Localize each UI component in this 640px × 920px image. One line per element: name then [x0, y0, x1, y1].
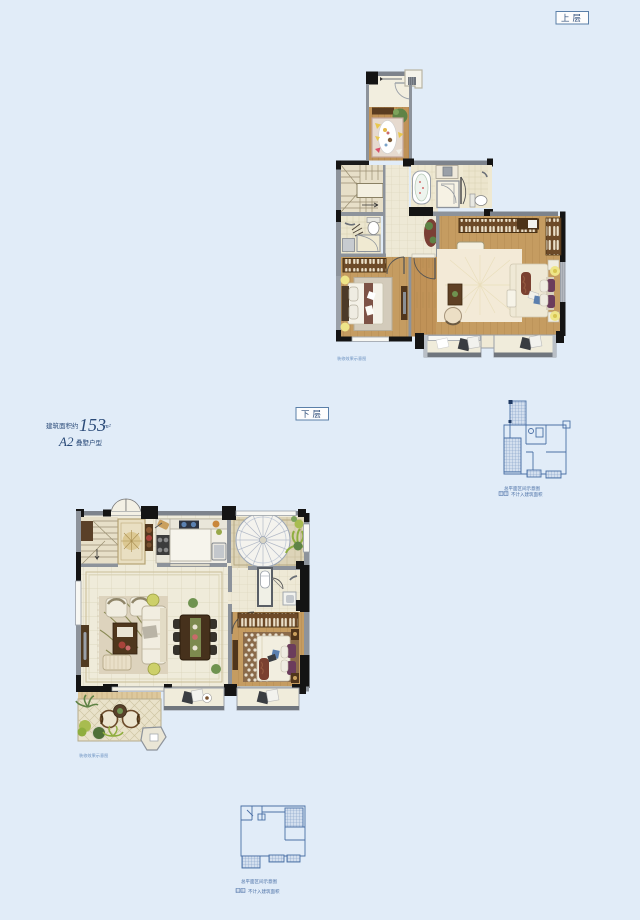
svg-text:不计入建筑面积: 不计入建筑面积: [248, 888, 280, 895]
svg-text:叠墅户型: 叠墅户型: [76, 438, 103, 447]
svg-text:装修效果示意图: 装修效果示意图: [79, 752, 108, 759]
svg-text:上层: 上层: [561, 13, 584, 23]
svg-text:总平面区间示意图: 总平面区间示意图: [241, 878, 277, 885]
svg-text:不计入建筑面积: 不计入建筑面积: [511, 491, 543, 498]
svg-text:153: 153: [79, 415, 106, 435]
svg-text:下层: 下层: [301, 409, 324, 419]
svg-text:m²: m²: [104, 423, 112, 430]
svg-text:建筑面积约: 建筑面积约: [46, 421, 79, 430]
svg-text:装修效果示意图: 装修效果示意图: [337, 355, 366, 362]
svg-text:总平面区间示意图: 总平面区间示意图: [504, 485, 540, 492]
svg-text:A2: A2: [58, 434, 74, 449]
